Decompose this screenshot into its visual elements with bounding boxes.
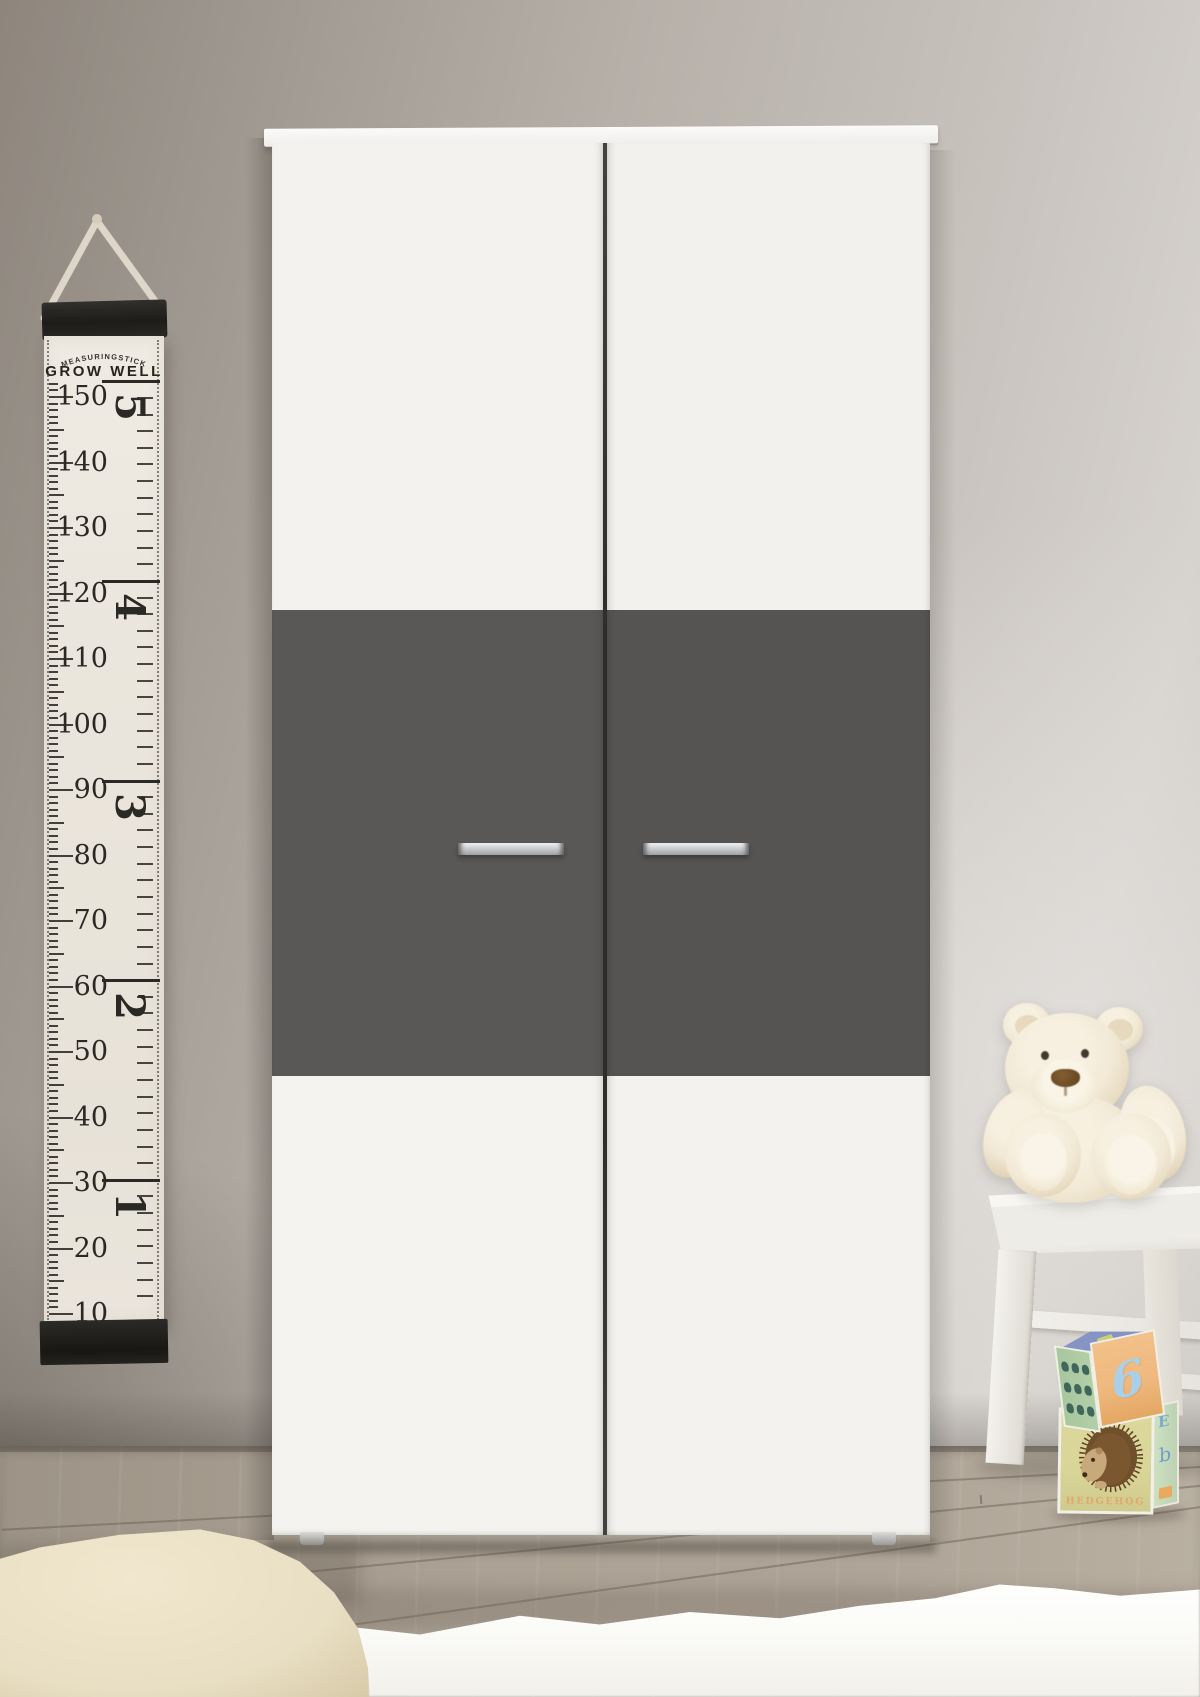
ruler-tick xyxy=(49,756,64,758)
cm-label: 120 xyxy=(50,576,108,612)
number-block: 6 xyxy=(1050,1320,1167,1432)
number-block-number: 6 xyxy=(1091,1331,1165,1429)
ruler-tick xyxy=(49,874,58,876)
inch-mark xyxy=(137,1229,153,1231)
inch-mark xyxy=(137,1096,153,1098)
inch-mark xyxy=(137,480,153,482)
animal-figure xyxy=(1065,1403,1073,1414)
ruler-tick xyxy=(49,1156,58,1158)
growth-chart: MEASURINGSTICK GROW WELL 150140130120110… xyxy=(44,336,164,1324)
animal-figure xyxy=(1086,1406,1094,1417)
animal-figure xyxy=(1060,1361,1068,1372)
inch-mark xyxy=(137,1195,153,1197)
ruler-tick xyxy=(49,809,58,811)
teddy-bear xyxy=(985,995,1195,1200)
ruler-tick xyxy=(49,678,58,680)
ruler-tick xyxy=(49,1202,58,1204)
inch-mark xyxy=(137,1146,153,1148)
inch-mark xyxy=(137,763,153,765)
ft-label: 2 xyxy=(106,983,152,1029)
cm-label: 30 xyxy=(50,1165,108,1201)
animal-figure xyxy=(1076,1404,1084,1415)
inch-mark xyxy=(137,879,153,881)
ruler-tick xyxy=(49,429,64,431)
inch-mark xyxy=(137,547,153,549)
inch-mark xyxy=(137,863,153,865)
inch-mark xyxy=(137,680,153,682)
inch-mark xyxy=(137,796,153,798)
inch-mark xyxy=(137,397,153,399)
wardrobe-handle-left xyxy=(458,843,564,855)
animal-figure xyxy=(1063,1382,1071,1393)
ruler: 1501401301201101009080706050403020105432… xyxy=(44,336,164,1324)
cm-label: 50 xyxy=(50,1034,108,1070)
nursery-room-photo: MEASURINGSTICK GROW WELL 150140130120110… xyxy=(0,0,1200,1697)
wardrobe-wall-shadow-left xyxy=(240,138,274,1540)
ruler-tick xyxy=(49,488,58,490)
teddy-foot-pad-left xyxy=(1019,1131,1067,1191)
inch-mark xyxy=(137,896,153,898)
inch-mark xyxy=(137,513,153,515)
inch-mark xyxy=(137,1046,153,1048)
ruler-tick xyxy=(49,566,58,568)
cm-label: 100 xyxy=(50,707,108,743)
inch-mark xyxy=(137,929,153,931)
ruler-tick xyxy=(49,1215,64,1217)
inch-mark xyxy=(137,713,153,715)
inch-mark xyxy=(137,946,153,948)
chart-top-band xyxy=(42,299,168,340)
block-side-letter: b xyxy=(1159,1444,1171,1467)
cm-label: 40 xyxy=(50,1100,108,1136)
foot-line xyxy=(102,1179,160,1182)
ruler-tick xyxy=(49,946,58,948)
inch-mark xyxy=(137,1212,153,1214)
foot-line xyxy=(102,380,160,383)
teddy-eye-right xyxy=(1081,1049,1089,1058)
wardrobe-foot-right xyxy=(872,1532,896,1545)
foot-line xyxy=(102,979,160,982)
ft-label: 5 xyxy=(106,384,152,430)
inch-mark xyxy=(137,913,153,915)
ruler-tick xyxy=(49,632,58,634)
wardrobe-door-right xyxy=(607,143,930,1535)
ruler-tick xyxy=(49,1280,64,1282)
ruler-tick xyxy=(49,1018,64,1020)
ruler-tick xyxy=(49,743,58,745)
wardrobe-floor-shadow xyxy=(268,1541,936,1553)
ruler-tick xyxy=(49,894,58,896)
inch-mark xyxy=(137,996,153,998)
ruler-tick xyxy=(49,684,58,686)
inch-mark xyxy=(137,1279,153,1281)
teddy-nose xyxy=(1051,1069,1080,1087)
wardrobe-foot-left xyxy=(300,1532,324,1545)
cm-label: 130 xyxy=(50,510,108,546)
ruler-tick xyxy=(49,501,58,503)
inch-mark xyxy=(137,1062,153,1064)
ruler-tick xyxy=(49,822,64,824)
inch-mark xyxy=(137,746,153,748)
inch-mark xyxy=(137,414,153,416)
ruler-tick xyxy=(49,481,58,483)
inch-mark xyxy=(137,646,153,648)
ruler-tick xyxy=(49,619,58,621)
cm-label: 140 xyxy=(50,445,108,481)
ruler-tick xyxy=(49,959,58,961)
ruler-tick xyxy=(49,1136,58,1138)
inch-mark xyxy=(137,630,153,632)
ruler-tick xyxy=(49,1149,64,1151)
inch-mark xyxy=(137,430,153,432)
inch-mark xyxy=(137,1029,153,1031)
ruler-tick xyxy=(49,881,58,883)
inch-mark xyxy=(137,1079,153,1081)
ft-label: 1 xyxy=(106,1183,152,1229)
inch-mark xyxy=(137,1012,153,1014)
inch-mark xyxy=(137,730,153,732)
ruler-tick xyxy=(49,612,58,614)
wardrobe-door-left xyxy=(272,143,604,1535)
cm-label: 70 xyxy=(50,903,108,939)
ruler-tick xyxy=(49,953,64,955)
teddy-eye-left xyxy=(1041,1051,1049,1060)
inch-mark xyxy=(137,613,153,615)
ft-label: 3 xyxy=(106,784,152,830)
ruler-tick xyxy=(49,560,64,562)
animal-figure xyxy=(1071,1363,1079,1374)
ft-label: 4 xyxy=(106,584,152,630)
inch-mark xyxy=(137,1262,153,1264)
ruler-tick xyxy=(49,691,64,693)
cm-label: 90 xyxy=(50,772,108,808)
ruler-tick xyxy=(49,763,58,765)
cm-label: 60 xyxy=(50,969,108,1005)
ruler-tick xyxy=(49,828,58,830)
animal-figure xyxy=(1083,1385,1091,1396)
inch-mark xyxy=(137,447,153,449)
ruler-tick xyxy=(49,1143,58,1145)
ruler-tick xyxy=(49,1077,58,1079)
ruler-tick xyxy=(49,697,58,699)
ruler-tick xyxy=(49,416,58,418)
ruler-tick xyxy=(49,940,58,942)
ruler-tick xyxy=(49,1025,58,1027)
ruler-tick xyxy=(49,553,58,555)
hedgehog-block-label: HEDGEHOG xyxy=(1060,1495,1150,1508)
cm-label: 150 xyxy=(50,379,108,415)
ruler-tick xyxy=(49,625,64,627)
inch-mark xyxy=(137,829,153,831)
teddy-foot-pad-right xyxy=(1105,1133,1157,1195)
ruler-tick xyxy=(49,547,58,549)
ruler-tick xyxy=(49,1084,64,1086)
inch-mark xyxy=(137,663,153,665)
block-side-square xyxy=(1159,1486,1172,1500)
ruler-tick xyxy=(49,1005,58,1007)
cm-label: 20 xyxy=(50,1231,108,1267)
cm-label: 110 xyxy=(50,641,108,677)
cm-label: 80 xyxy=(50,838,108,874)
ruler-tick xyxy=(49,750,58,752)
inch-mark xyxy=(137,1245,153,1247)
ruler-tick xyxy=(49,887,64,889)
animal-figure xyxy=(1081,1364,1089,1375)
foot-line xyxy=(102,580,160,583)
ruler-tick xyxy=(49,1267,58,1269)
inch-mark xyxy=(137,497,153,499)
wardrobe-handle-right xyxy=(643,843,749,855)
inch-mark xyxy=(137,696,153,698)
foot-line xyxy=(102,780,160,783)
ruler-tick xyxy=(49,1071,58,1073)
ruler-tick xyxy=(49,435,58,437)
teddy-mouth xyxy=(1064,1086,1067,1096)
ruler-tick xyxy=(49,1221,58,1223)
ruler-tick xyxy=(49,1012,58,1014)
ruler-tick xyxy=(49,1208,58,1210)
inch-mark xyxy=(137,1129,153,1131)
inch-mark xyxy=(137,813,153,815)
chart-bottom-band xyxy=(40,1319,169,1365)
inch-mark xyxy=(137,530,153,532)
ruler-tick xyxy=(49,815,58,817)
ruler-tick xyxy=(49,494,64,496)
ruler-tick xyxy=(49,1090,58,1092)
inch-mark xyxy=(137,963,153,965)
ruler-tick xyxy=(49,422,58,424)
inch-mark xyxy=(137,846,153,848)
inch-mark xyxy=(137,597,153,599)
inch-mark xyxy=(137,1112,153,1114)
wardrobe-door-gap xyxy=(603,143,607,1535)
inch-mark xyxy=(137,1162,153,1164)
number-block-number-face: 6 xyxy=(1090,1329,1165,1428)
inch-mark xyxy=(137,563,153,565)
ruler-tick xyxy=(49,1287,58,1289)
animal-figure xyxy=(1073,1383,1081,1394)
ruler-tick xyxy=(49,1274,58,1276)
wardrobe-wall-shadow-right xyxy=(930,150,960,1542)
inch-mark xyxy=(137,1295,153,1297)
inch-mark xyxy=(137,463,153,465)
